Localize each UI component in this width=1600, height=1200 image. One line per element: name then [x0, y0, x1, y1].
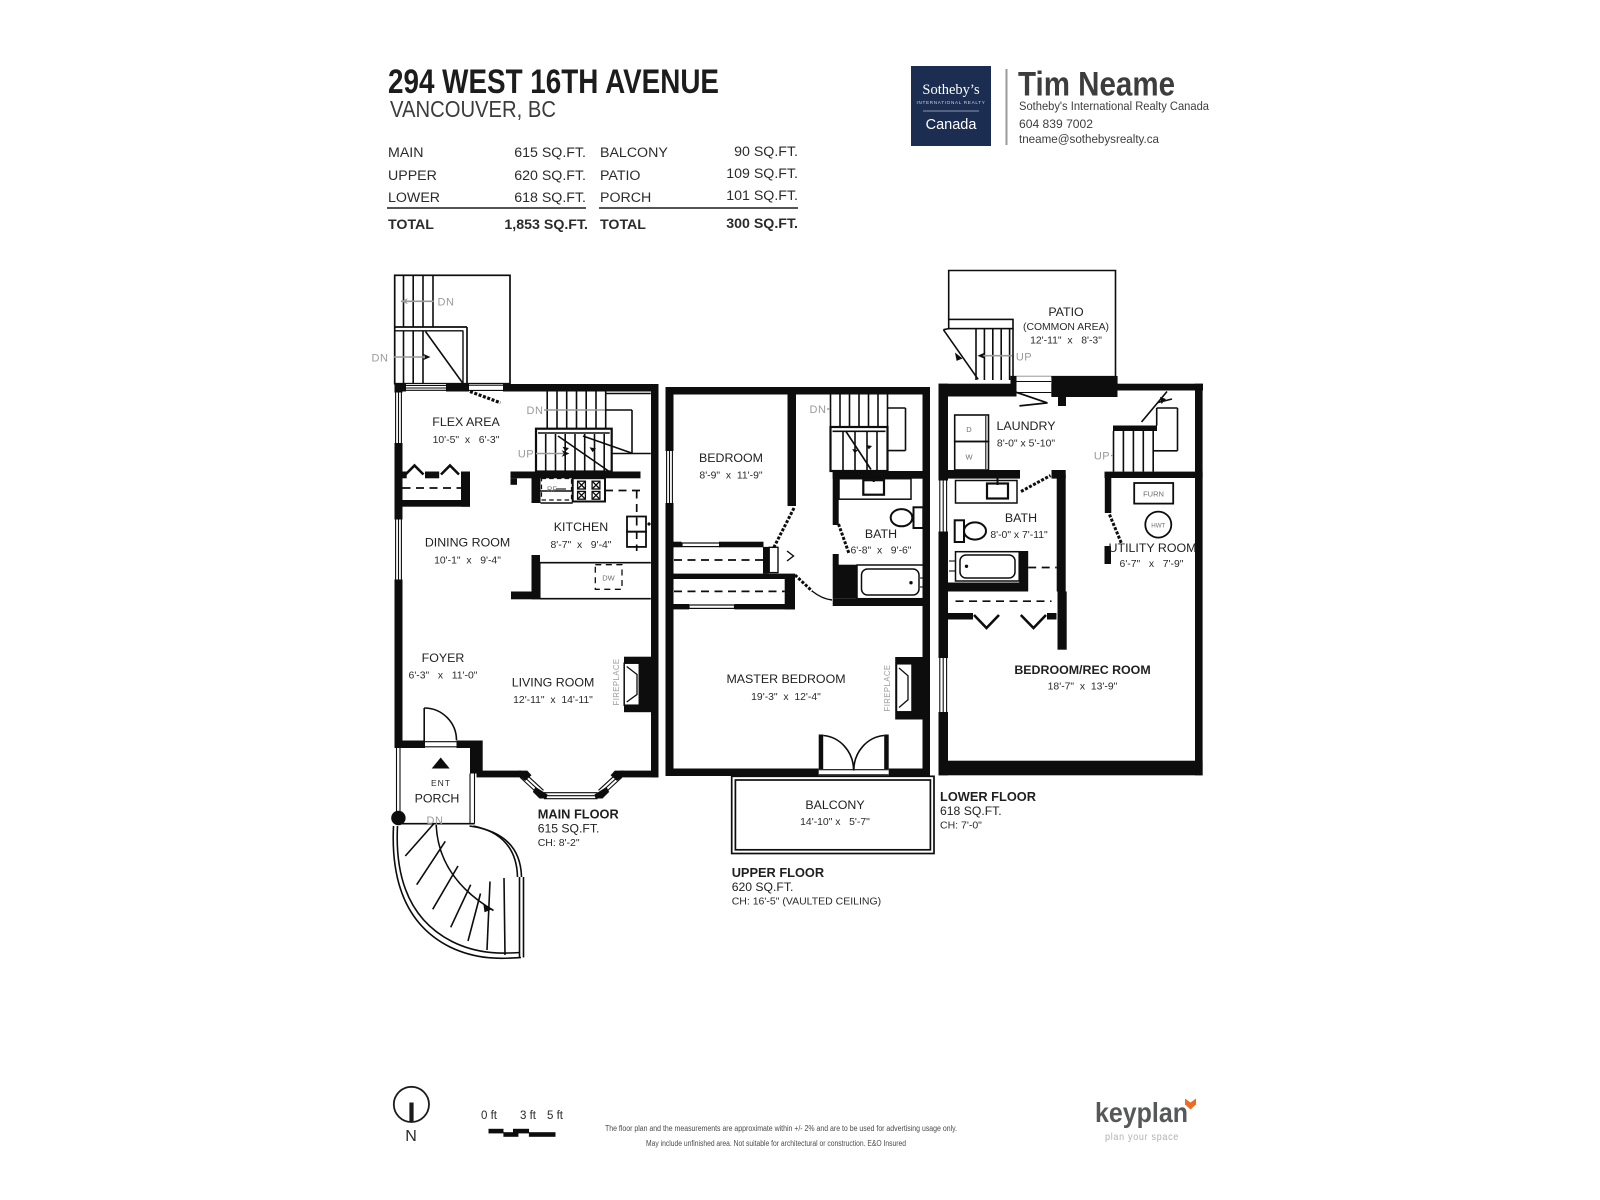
svg-text:keyplan: keyplan — [1095, 1097, 1188, 1128]
svg-text:604 839 7002: 604 839 7002 — [1019, 117, 1093, 131]
svg-text:BALCONY: BALCONY — [600, 145, 668, 161]
svg-text:Sotheby’s: Sotheby’s — [922, 82, 980, 98]
svg-text:UP: UP — [1094, 451, 1110, 463]
svg-text:618 SQ.FT.: 618 SQ.FT. — [514, 190, 586, 206]
svg-text:MASTER BEDROOM: MASTER BEDROOM — [726, 672, 845, 686]
svg-text:FOYER: FOYER — [422, 651, 465, 665]
svg-text:FURN: FURN — [1143, 490, 1164, 499]
svg-text:6'-3" x 11'-0": 6'-3" x 11'-0" — [409, 671, 478, 682]
svg-text:BEDROOM/REC ROOM: BEDROOM/REC ROOM — [1014, 663, 1150, 677]
svg-text:HWT: HWT — [1151, 523, 1165, 530]
svg-text:300 SQ.FT.: 300 SQ.FT. — [726, 216, 798, 232]
svg-text:DN: DN — [438, 297, 455, 309]
svg-text:620 SQ.FT.: 620 SQ.FT. — [514, 168, 586, 184]
svg-text:UPPER: UPPER — [388, 168, 437, 184]
svg-text:TOTAL: TOTAL — [600, 217, 646, 233]
svg-text:tneame@sothebysrealty.ca: tneame@sothebysrealty.ca — [1019, 132, 1159, 146]
svg-text:BATH: BATH — [865, 527, 897, 541]
svg-text:8'-9" x 11'-9": 8'-9" x 11'-9" — [699, 471, 762, 482]
svg-text:N: N — [405, 1128, 417, 1145]
svg-text:BATH: BATH — [1005, 511, 1037, 525]
svg-text:VANCOUVER, BC: VANCOUVER, BC — [390, 96, 556, 122]
svg-text:3 ft: 3 ft — [520, 1110, 537, 1122]
svg-text:ENT: ENT — [431, 778, 451, 788]
svg-text:10'-5" x 6'-3": 10'-5" x 6'-3" — [433, 435, 500, 446]
svg-text:12'-11" x 8'-3": 12'-11" x 8'-3" — [1030, 336, 1102, 347]
svg-text:PORCH: PORCH — [415, 792, 460, 806]
svg-text:FIREPLACE: FIREPLACE — [612, 659, 621, 706]
svg-text:MAIN: MAIN — [388, 145, 423, 161]
svg-text:PORCH: PORCH — [600, 190, 651, 206]
svg-text:Sotheby's International Realty: Sotheby's International Realty Canada — [1019, 99, 1209, 113]
svg-text:DN: DN — [372, 353, 389, 365]
svg-text:CH: 7'-0": CH: 7'-0" — [940, 820, 982, 832]
svg-text:DN: DN — [427, 815, 444, 827]
svg-text:DN: DN — [810, 404, 827, 416]
svg-text:FLEX AREA: FLEX AREA — [432, 415, 500, 429]
svg-text:DN: DN — [527, 405, 544, 417]
svg-text:6'-7" x 7'-9": 6'-7" x 7'-9" — [1120, 559, 1184, 570]
svg-text:UP: UP — [518, 449, 534, 461]
svg-text:101 SQ.FT.: 101 SQ.FT. — [726, 188, 798, 204]
svg-text:(COMMON AREA): (COMMON AREA) — [1023, 322, 1109, 333]
svg-text:W: W — [965, 453, 973, 462]
svg-text:0 ft: 0 ft — [481, 1110, 498, 1122]
svg-text:PATIO: PATIO — [600, 168, 640, 184]
svg-text:615 SQ.FT.: 615 SQ.FT. — [514, 145, 586, 161]
svg-text:90 SQ.FT.: 90 SQ.FT. — [734, 144, 798, 160]
svg-text:UPPER FLOOR: UPPER FLOOR — [732, 865, 824, 880]
svg-text:Canada: Canada — [926, 117, 978, 133]
svg-text:LOWER: LOWER — [388, 190, 440, 206]
svg-text:18'-7" x 13'-9": 18'-7" x 13'-9" — [1048, 682, 1118, 693]
svg-text:plan your space: plan your space — [1105, 1132, 1179, 1143]
svg-text:LIVING ROOM: LIVING ROOM — [512, 676, 595, 690]
svg-text:RF: RF — [547, 485, 557, 494]
svg-text:UTILITY ROOM: UTILITY ROOM — [1109, 541, 1197, 555]
svg-text:12'-11" x 14'-11": 12'-11" x 14'-11" — [513, 695, 593, 706]
svg-text:618 SQ.FT.: 618 SQ.FT. — [940, 804, 1002, 818]
svg-text:DINING ROOM: DINING ROOM — [425, 536, 510, 550]
svg-text:DW: DW — [602, 574, 615, 583]
svg-text:615 SQ.FT.: 615 SQ.FT. — [538, 822, 600, 836]
svg-text:19'-3" x 12'-4": 19'-3" x 12'-4" — [751, 692, 821, 703]
svg-text:5 ft: 5 ft — [547, 1110, 564, 1122]
svg-text:MAIN FLOOR: MAIN FLOOR — [538, 807, 619, 822]
svg-text:D: D — [966, 425, 972, 434]
svg-text:6'-8" x 9'-6": 6'-8" x 9'-6" — [850, 546, 911, 557]
svg-text:BEDROOM: BEDROOM — [699, 451, 763, 465]
svg-text:Tim Neame: Tim Neame — [1018, 66, 1175, 104]
svg-text:14'-10" x 5'-7": 14'-10" x 5'-7" — [800, 817, 870, 828]
svg-text:PATIO: PATIO — [1048, 305, 1084, 319]
svg-text:The floor plan and the measure: The floor plan and the measurements are … — [605, 1124, 957, 1133]
svg-text:FIREPLACE: FIREPLACE — [883, 665, 892, 712]
svg-text:KITCHEN: KITCHEN — [554, 520, 608, 534]
svg-text:LAUNDRY: LAUNDRY — [997, 419, 1056, 433]
svg-text:8'-0" x 7'-11": 8'-0" x 7'-11" — [990, 530, 1048, 541]
svg-text:10'-1" x 9'-4": 10'-1" x 9'-4" — [434, 556, 501, 567]
svg-text:620 SQ.FT.: 620 SQ.FT. — [732, 880, 794, 894]
svg-text:8'-7" x 9'-4": 8'-7" x 9'-4" — [550, 540, 611, 551]
svg-text:May include unfinished area. N: May include unfinished area. Not suitabl… — [646, 1139, 906, 1148]
svg-text:INTERNATIONAL REALTY: INTERNATIONAL REALTY — [916, 100, 985, 105]
svg-text:CH: 16'-5" (VAULTED CEILING): CH: 16'-5" (VAULTED CEILING) — [732, 896, 881, 908]
svg-text:LOWER FLOOR: LOWER FLOOR — [940, 789, 1036, 804]
svg-text:CH: 8'-2": CH: 8'-2" — [538, 837, 580, 849]
svg-text:8'-0" x 5'-10": 8'-0" x 5'-10" — [997, 439, 1055, 450]
svg-text:UP: UP — [1016, 352, 1032, 364]
svg-text:109 SQ.FT.: 109 SQ.FT. — [726, 166, 798, 182]
svg-text:TOTAL: TOTAL — [388, 217, 434, 233]
svg-text:1,853 SQ.FT.: 1,853 SQ.FT. — [504, 217, 588, 233]
svg-text:BALCONY: BALCONY — [805, 798, 864, 812]
